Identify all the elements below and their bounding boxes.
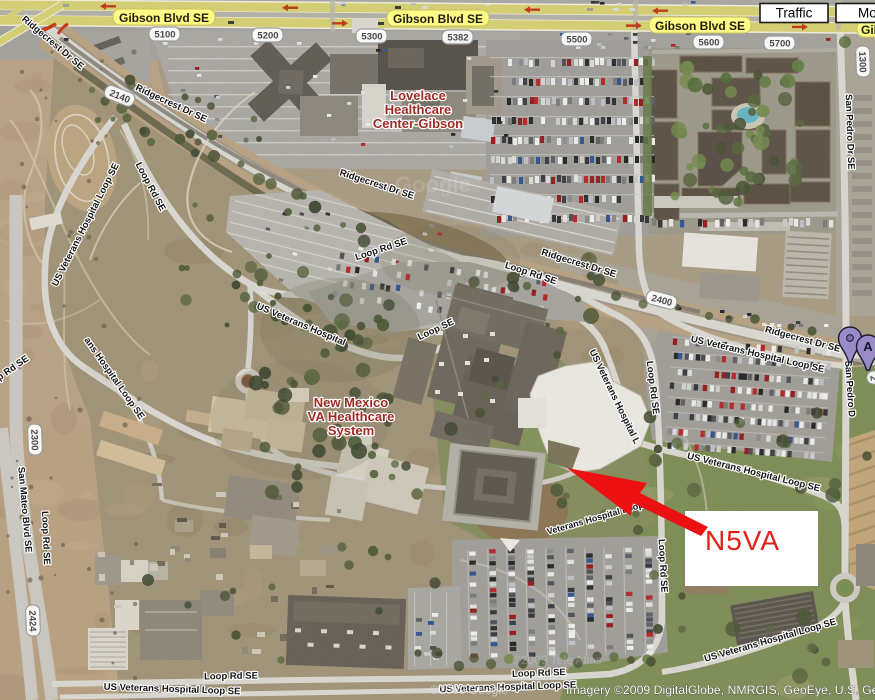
svg-text:5600: 5600 — [698, 38, 719, 49]
svg-text:Lovelace: Lovelace — [390, 88, 446, 103]
svg-text:A: A — [863, 339, 873, 354]
svg-text:1300: 1300 — [856, 51, 868, 73]
svg-text:Mo: Mo — [858, 6, 875, 21]
svg-text:Google: Google — [395, 172, 471, 197]
svg-text:New Mexico: New Mexico — [314, 395, 388, 410]
svg-text:Loop Rd SE: Loop Rd SE — [512, 667, 566, 680]
svg-text:Gibson Blvd SE: Gibson Blvd SE — [655, 19, 745, 33]
svg-text:System: System — [328, 423, 374, 438]
svg-text:5382: 5382 — [447, 33, 468, 44]
svg-text:Healthcare: Healthcare — [385, 102, 451, 117]
svg-text:Gibson Blvd SE: Gibson Blvd SE — [393, 12, 483, 26]
svg-text:Gib: Gib — [861, 23, 875, 37]
svg-text:Imagery ©2009 DigitalGlobe, NM: Imagery ©2009 DigitalGlobe, NMRGIS, GeoE… — [566, 683, 875, 697]
svg-text:5100: 5100 — [154, 30, 175, 41]
svg-text:©2009 Tele Atlas: ©2009 Tele Atlas — [512, 653, 602, 667]
svg-text:Loop Rd SE: Loop Rd SE — [39, 511, 52, 565]
svg-text:Loop Rd SE: Loop Rd SE — [204, 671, 258, 683]
svg-text:VA Healthcare: VA Healthcare — [308, 409, 395, 424]
svg-text:5200: 5200 — [257, 31, 278, 42]
svg-text:Center-Gibson: Center-Gibson — [373, 116, 463, 131]
svg-text:©2009 Google -: ©2009 Google - — [430, 683, 515, 697]
svg-text:5500: 5500 — [566, 35, 587, 46]
svg-text:Gibson Blvd SE: Gibson Blvd SE — [119, 11, 209, 25]
svg-text:N5VA: N5VA — [705, 525, 780, 556]
svg-text:Traffic: Traffic — [776, 6, 813, 21]
svg-text:2: 2 — [867, 375, 875, 382]
svg-text:2424: 2424 — [26, 610, 38, 632]
svg-text:5700: 5700 — [769, 39, 790, 50]
svg-text:5300: 5300 — [361, 32, 382, 43]
svg-text:2300: 2300 — [28, 429, 40, 451]
